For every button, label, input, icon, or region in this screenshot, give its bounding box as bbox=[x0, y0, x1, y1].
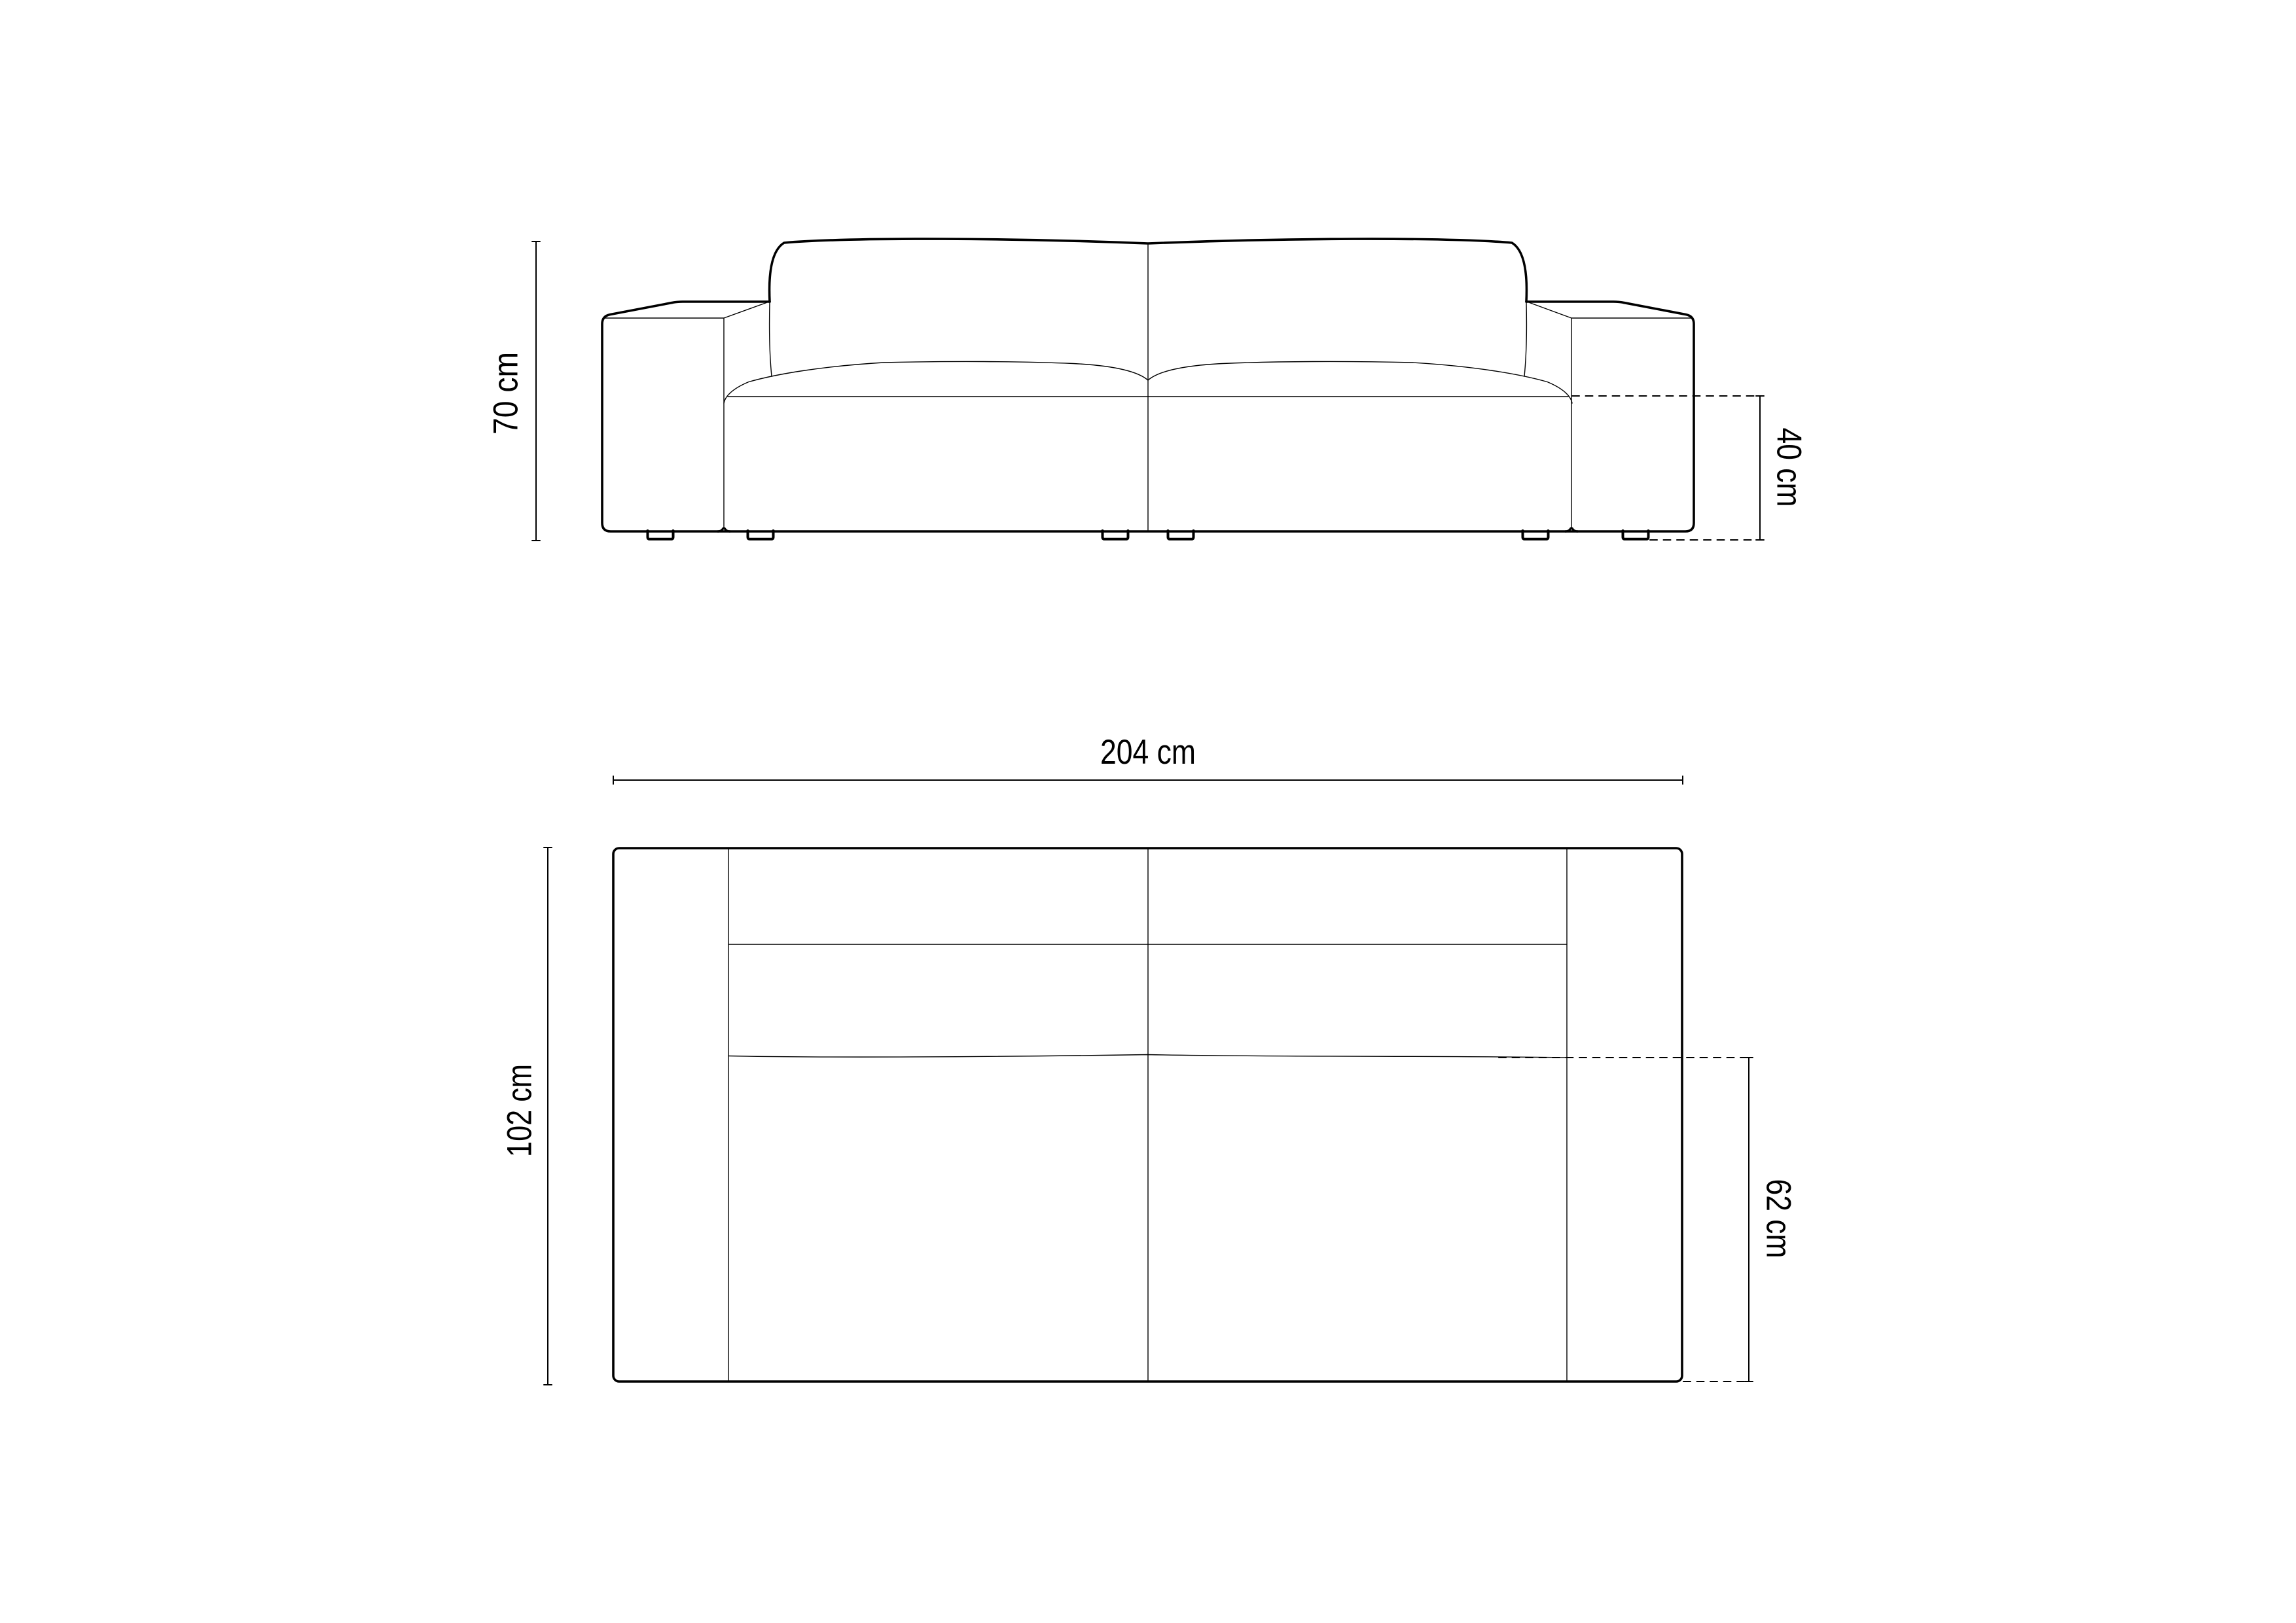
svg-text:62 cm: 62 cm bbox=[1759, 1179, 1798, 1258]
svg-text:40 cm: 40 cm bbox=[1770, 428, 1808, 507]
svg-text:102 cm: 102 cm bbox=[501, 1064, 539, 1157]
svg-text:204 cm: 204 cm bbox=[1100, 733, 1196, 772]
svg-text:70 cm: 70 cm bbox=[487, 352, 526, 435]
